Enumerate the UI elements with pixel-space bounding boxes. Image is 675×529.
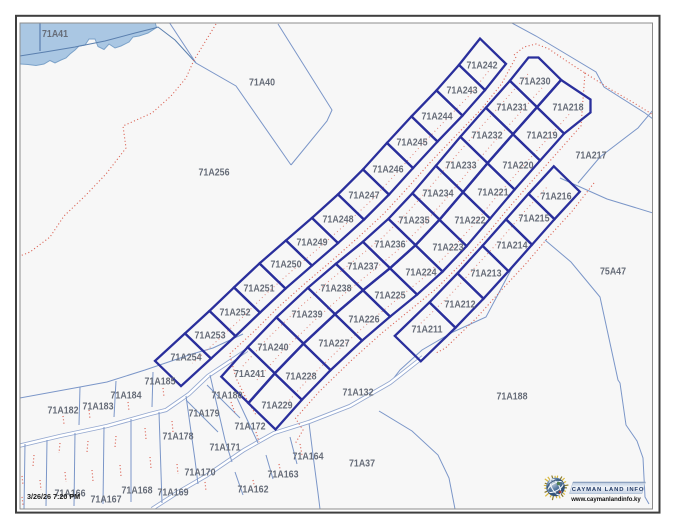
svg-text:71A219: 71A219 <box>527 130 558 141</box>
svg-text:71A184: 71A184 <box>111 390 142 401</box>
svg-text:www.caymanlandinfo.ky: www.caymanlandinfo.ky <box>570 497 641 503</box>
svg-text:71A221: 71A221 <box>478 187 509 198</box>
svg-text:71A231: 71A231 <box>497 102 528 113</box>
svg-text:71A41: 71A41 <box>42 29 68 40</box>
svg-text:71A244: 71A244 <box>422 111 453 122</box>
svg-text:71A162: 71A162 <box>238 484 269 495</box>
svg-text:71A183: 71A183 <box>83 401 114 412</box>
svg-text:71A227: 71A227 <box>319 338 350 349</box>
svg-text:71A37: 71A37 <box>349 458 375 469</box>
svg-text:71A223: 71A223 <box>433 242 464 253</box>
svg-text:71A248: 71A248 <box>323 214 354 225</box>
svg-text:71A218: 71A218 <box>553 102 584 113</box>
svg-text:71A252: 71A252 <box>220 307 251 318</box>
svg-text:71A188: 71A188 <box>497 391 528 402</box>
svg-text:3/26/26 7:20 PM: 3/26/26 7:20 PM <box>27 492 80 501</box>
svg-text:71A225: 71A225 <box>375 290 406 301</box>
svg-text:71A239: 71A239 <box>292 309 323 320</box>
svg-text:71A222: 71A222 <box>455 215 486 226</box>
svg-text:71A132: 71A132 <box>343 387 374 398</box>
svg-text:71A215: 71A215 <box>519 213 550 224</box>
svg-text:71A256: 71A256 <box>199 167 230 178</box>
svg-text:71A213: 71A213 <box>471 268 502 279</box>
svg-text:71A179: 71A179 <box>189 408 220 419</box>
svg-text:71A212: 71A212 <box>445 299 476 310</box>
svg-text:71A250: 71A250 <box>271 259 302 270</box>
svg-text:71A169: 71A169 <box>158 487 189 498</box>
svg-text:71A253: 71A253 <box>195 330 226 341</box>
svg-text:71A229: 71A229 <box>262 400 293 411</box>
svg-text:71A171: 71A171 <box>210 442 241 453</box>
svg-text:71A220: 71A220 <box>503 160 534 171</box>
svg-text:71A211: 71A211 <box>412 324 443 335</box>
svg-text:71A238: 71A238 <box>321 283 352 294</box>
svg-text:71A40: 71A40 <box>249 77 275 88</box>
svg-text:71A167: 71A167 <box>91 494 122 505</box>
svg-text:71A217: 71A217 <box>576 150 607 161</box>
svg-text:71A168: 71A168 <box>122 485 153 496</box>
svg-text:71A214: 71A214 <box>497 240 528 251</box>
svg-text:CAYMAN LAND INFO: CAYMAN LAND INFO <box>572 487 645 493</box>
svg-text:71A224: 71A224 <box>406 267 437 278</box>
svg-text:71A246: 71A246 <box>373 164 404 175</box>
svg-text:71A182: 71A182 <box>48 405 79 416</box>
svg-text:71A243: 71A243 <box>447 85 478 96</box>
svg-text:71A236: 71A236 <box>375 239 406 250</box>
svg-text:75A47: 75A47 <box>600 266 626 277</box>
svg-text:71A249: 71A249 <box>297 237 328 248</box>
svg-text:71A164: 71A164 <box>293 451 324 462</box>
svg-text:71A232: 71A232 <box>472 130 503 141</box>
svg-text:71A170: 71A170 <box>185 467 216 478</box>
svg-text:71A245: 71A245 <box>397 137 428 148</box>
svg-text:71A235: 71A235 <box>399 215 430 226</box>
svg-text:71A233: 71A233 <box>446 160 477 171</box>
svg-text:71A178: 71A178 <box>163 431 194 442</box>
svg-text:71A228: 71A228 <box>286 371 317 382</box>
svg-text:71A163: 71A163 <box>268 469 299 480</box>
svg-text:71A216: 71A216 <box>541 191 572 202</box>
svg-text:71A226: 71A226 <box>349 314 380 325</box>
svg-text:71A237: 71A237 <box>348 261 379 272</box>
svg-text:71A234: 71A234 <box>423 188 454 199</box>
svg-text:71A254: 71A254 <box>171 352 202 363</box>
svg-text:71A247: 71A247 <box>349 190 380 201</box>
svg-text:71A185: 71A185 <box>145 376 176 387</box>
svg-text:71A172: 71A172 <box>235 421 266 432</box>
svg-text:71A251: 71A251 <box>244 283 275 294</box>
svg-text:71A230: 71A230 <box>520 76 551 87</box>
svg-text:71A240: 71A240 <box>258 342 289 353</box>
svg-text:71A180: 71A180 <box>212 390 243 401</box>
svg-text:71A242: 71A242 <box>467 60 498 71</box>
svg-text:71A241: 71A241 <box>234 369 265 380</box>
